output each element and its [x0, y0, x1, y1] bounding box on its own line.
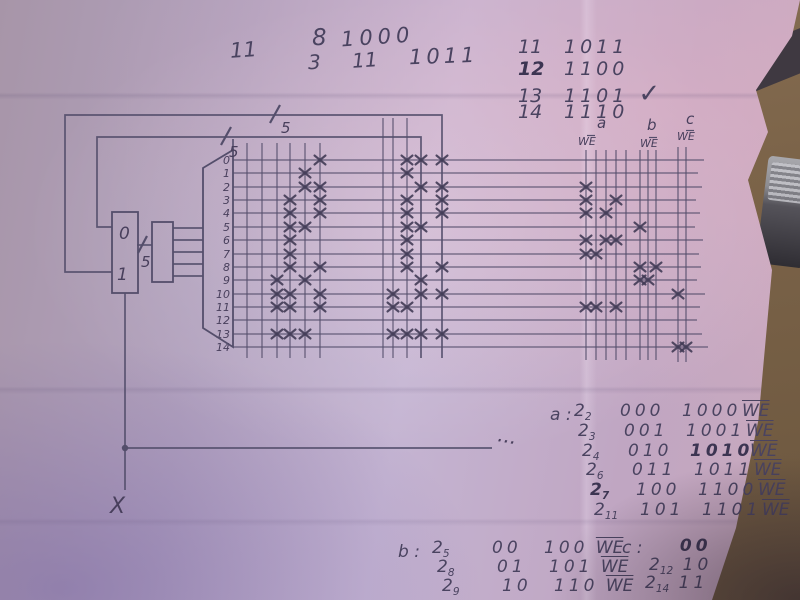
- z-output-label: 26: [586, 460, 604, 480]
- table-label: c :: [622, 540, 642, 557]
- word-bits: 1101: [702, 500, 761, 520]
- table-address-cell: 01: [497, 559, 527, 576]
- decoder-output-number: 6: [223, 234, 230, 247]
- decimal-value: 11: [518, 38, 564, 57]
- we-signal-label: WE: [746, 421, 774, 441]
- word-bits: 1010: [690, 441, 753, 461]
- decoder-output-number: 13: [216, 328, 230, 341]
- table-address-cell: 00: [492, 540, 522, 557]
- table-z-cell: 24: [582, 443, 600, 463]
- word-bits: 1011: [694, 460, 753, 480]
- table-word-cell: 101 WE: [549, 559, 628, 576]
- table-address-cell: 011: [632, 462, 676, 479]
- table-we-cell: WE: [754, 462, 782, 479]
- z-output-label: 28: [437, 557, 455, 577]
- word-bits: 1100: [698, 480, 757, 500]
- decoder-output-number: 9: [223, 274, 230, 287]
- ellipsis-dots: ...: [496, 422, 519, 449]
- table-we-cell: WE: [758, 482, 786, 499]
- we-signal-label: WE: [762, 500, 790, 520]
- bank-b-we-label: WE: [640, 137, 658, 150]
- binary-value: 1100: [564, 58, 628, 80]
- binary-value: 11: [669, 573, 708, 593]
- z-output-label: 27: [590, 480, 609, 500]
- z-output-label: 25: [432, 538, 450, 558]
- we-signal-label: WE: [750, 441, 778, 461]
- table-we-cell: WE: [750, 443, 778, 460]
- decoder-output-number: 4: [223, 207, 230, 220]
- we-signal-label: WE: [754, 460, 782, 480]
- table-we-cell: WE: [762, 502, 790, 519]
- decimal-value: 12: [518, 60, 564, 79]
- table-z-cell: 29: [442, 578, 460, 598]
- decoder-output-number: 12: [216, 314, 230, 327]
- bus-width-label: 5: [141, 253, 151, 271]
- we-signal-label: WE: [596, 538, 624, 558]
- z-output-label: 212: [649, 555, 673, 575]
- note-token: 1000: [340, 24, 415, 50]
- table-row: 214 11: [645, 575, 708, 595]
- mux-input-1-label: 1: [117, 265, 128, 285]
- we-signal-label: WE: [601, 557, 629, 577]
- decoder-output-number: 5: [223, 221, 230, 234]
- table-address-cell: 101: [640, 502, 684, 519]
- table-word-cell: 1011: [694, 462, 753, 479]
- decoder-output-number: 10: [216, 288, 230, 301]
- table-z-cell: 211: [594, 502, 618, 522]
- bus-width-label: 5: [281, 119, 291, 137]
- table-label: b :: [398, 544, 420, 561]
- table-word-cell: 1000: [682, 403, 741, 420]
- table-address-cell: 10: [502, 578, 532, 595]
- note-token: 1011: [409, 45, 479, 68]
- note-token: 11: [351, 49, 378, 71]
- z-output-label: 24: [582, 441, 600, 461]
- binary-value: 1110: [564, 101, 628, 123]
- z-output-label: 211: [594, 500, 618, 520]
- table-word-cell: 1101: [702, 502, 761, 519]
- bank-a-we-label: WE: [578, 135, 596, 148]
- we-signal-label: WE: [606, 576, 634, 596]
- table-address-cell: 000: [620, 403, 664, 420]
- z-output-label: 214: [645, 573, 669, 593]
- table-address-cell: 001: [624, 423, 668, 440]
- wire-junction: [122, 445, 128, 451]
- table-address-cell: 100: [636, 482, 680, 499]
- table-z-cell: 26: [586, 462, 604, 482]
- z-output-label: 29: [442, 576, 460, 596]
- note-token: 3: [308, 52, 321, 72]
- bank-c-we-label: WE: [677, 130, 695, 143]
- word-bits: 101: [549, 557, 593, 577]
- photo-scene: 0123456789101112131401aWEbWEcWE555X... 1…: [0, 0, 800, 600]
- table-row: 00: [670, 538, 712, 555]
- decoder-output-number: 1: [223, 167, 230, 180]
- bank-b-label: b: [647, 116, 657, 134]
- x-node-label: X: [109, 494, 126, 519]
- bus-width-label: 5: [229, 143, 239, 161]
- bus-width-slash: [270, 105, 280, 123]
- table-word-cell: 1100: [698, 482, 757, 499]
- binary-value: 1011: [564, 36, 628, 58]
- note-token: 8: [312, 27, 327, 50]
- word-bits: 1000: [682, 401, 741, 421]
- table-label: a :: [550, 407, 572, 424]
- decoder-output-number: 2: [223, 181, 230, 194]
- checklist-row: 141110: [518, 103, 628, 122]
- register-box: [152, 222, 173, 282]
- decoder-output-number: 11: [216, 301, 230, 314]
- z-output-label: 23: [578, 421, 596, 441]
- table-z-cell: 23: [578, 423, 596, 443]
- check-mark: ✓: [638, 79, 660, 109]
- bank-c-label: c: [686, 110, 695, 128]
- word-bits: 100: [544, 538, 588, 558]
- word-bits: 1001: [686, 421, 745, 441]
- decoder-output-number: 3: [223, 194, 230, 207]
- decoder-output-number: 8: [223, 261, 230, 274]
- binary-value: 00: [670, 536, 712, 556]
- table-word-cell: 110 WE: [554, 578, 633, 595]
- table-word-cell: 1010: [690, 443, 753, 460]
- checklist-row: 111011: [518, 38, 628, 57]
- table-we-cell: WE: [742, 403, 770, 420]
- table-word-cell: 100 WE: [544, 540, 623, 557]
- decimal-value: 14: [518, 103, 564, 122]
- word-bits: 110: [554, 576, 598, 596]
- table-address-cell: 010: [628, 443, 672, 460]
- table-z-cell: 27: [590, 482, 609, 502]
- bus-wire: [97, 137, 421, 358]
- mux-input-0-label: 0: [119, 224, 130, 244]
- we-signal-label: WE: [758, 480, 786, 500]
- z-output-label: 22: [574, 401, 592, 421]
- checklist-row: 121100: [518, 60, 628, 79]
- binary-value: 10: [673, 555, 712, 575]
- table-we-cell: WE: [746, 423, 774, 440]
- table-word-cell: 1001: [686, 423, 745, 440]
- note-token: 11: [229, 39, 257, 62]
- table-z-cell: 22: [574, 403, 592, 423]
- we-signal-label: WE: [742, 401, 770, 421]
- decoder-output-number: 7: [223, 248, 230, 261]
